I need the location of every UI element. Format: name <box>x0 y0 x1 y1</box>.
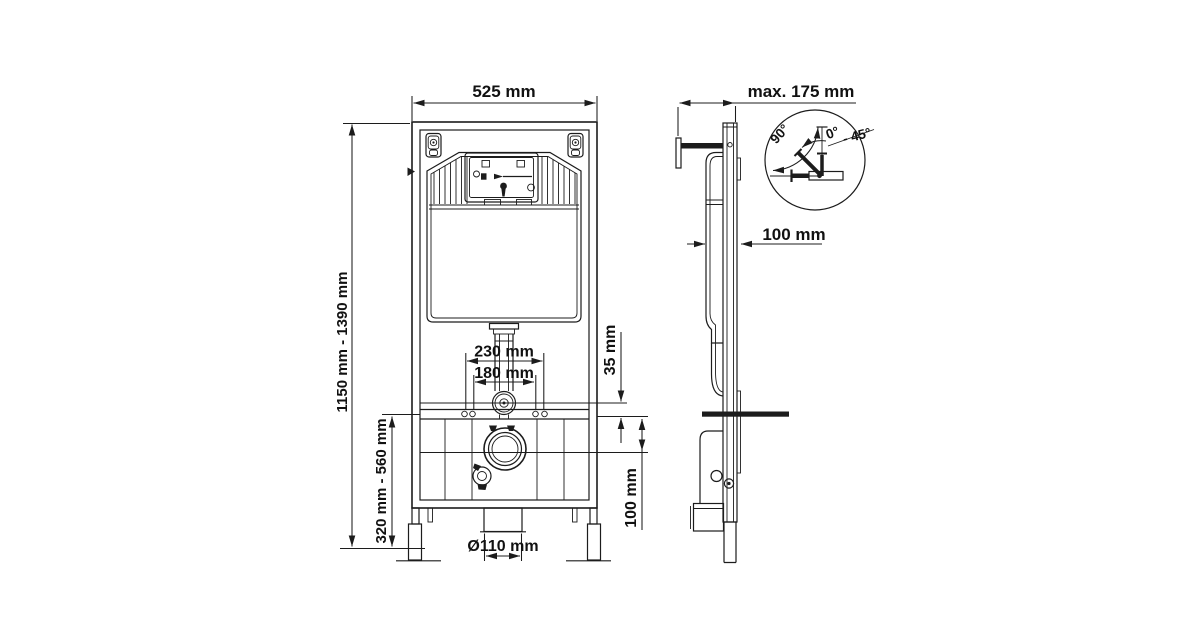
frame-struts <box>445 420 564 500</box>
wall-bracket <box>676 138 732 168</box>
technical-drawing-canvas: 525 mm 1150 mm - 1390 mm 320 mm - 560 mm… <box>0 0 1200 630</box>
drain-outlet <box>473 426 648 532</box>
angle-0-label: 0° <box>824 124 841 143</box>
side-cistern-depth-dimension: 100 mm <box>687 225 826 244</box>
fixing-bolt <box>470 411 476 417</box>
dim-width-label: 525 mm <box>472 82 535 101</box>
service-window <box>465 153 538 205</box>
dim-drain-offset-label: 100 mm <box>623 468 640 528</box>
angle-90-label: 90° <box>767 121 792 146</box>
dim-lower-height-range-label: 320 mm - 560 mm <box>373 418 390 543</box>
angle-45-label: - 45° <box>841 125 872 146</box>
angle-gauge: 90° 0° - 45° <box>765 110 874 210</box>
drain-stub <box>484 508 522 532</box>
side-view: max. 175 mm 100 mm <box>676 82 874 563</box>
front-view: 525 mm 1150 mm - 1390 mm 320 mm - 560 mm… <box>334 82 648 561</box>
crossbar <box>420 403 648 453</box>
dim-drain-diameter-label: Ø110 mm <box>467 538 538 555</box>
dim-small-offset-label: 35 mm <box>602 325 619 376</box>
fixing-bar <box>702 412 789 417</box>
installation-frame-drawing: 525 mm 1150 mm - 1390 mm 320 mm - 560 mm… <box>0 0 1200 630</box>
dim-flush-spacing-label: 230 mm <box>474 344 534 361</box>
dim-height-range-label: 1150 mm - 1390 mm <box>334 272 351 413</box>
dim-max-depth-label: max. 175 mm <box>748 82 855 101</box>
dim-cistern-depth-label: 100 mm <box>762 225 825 244</box>
cistern-tank <box>427 153 581 323</box>
side-rail <box>723 123 741 563</box>
cistern-side <box>706 153 723 397</box>
fixing-bolt <box>542 411 548 417</box>
dim-bolt-spacing-label: 180 mm <box>474 365 534 382</box>
fixing-bolt <box>462 411 468 417</box>
fixing-bolt <box>533 411 539 417</box>
